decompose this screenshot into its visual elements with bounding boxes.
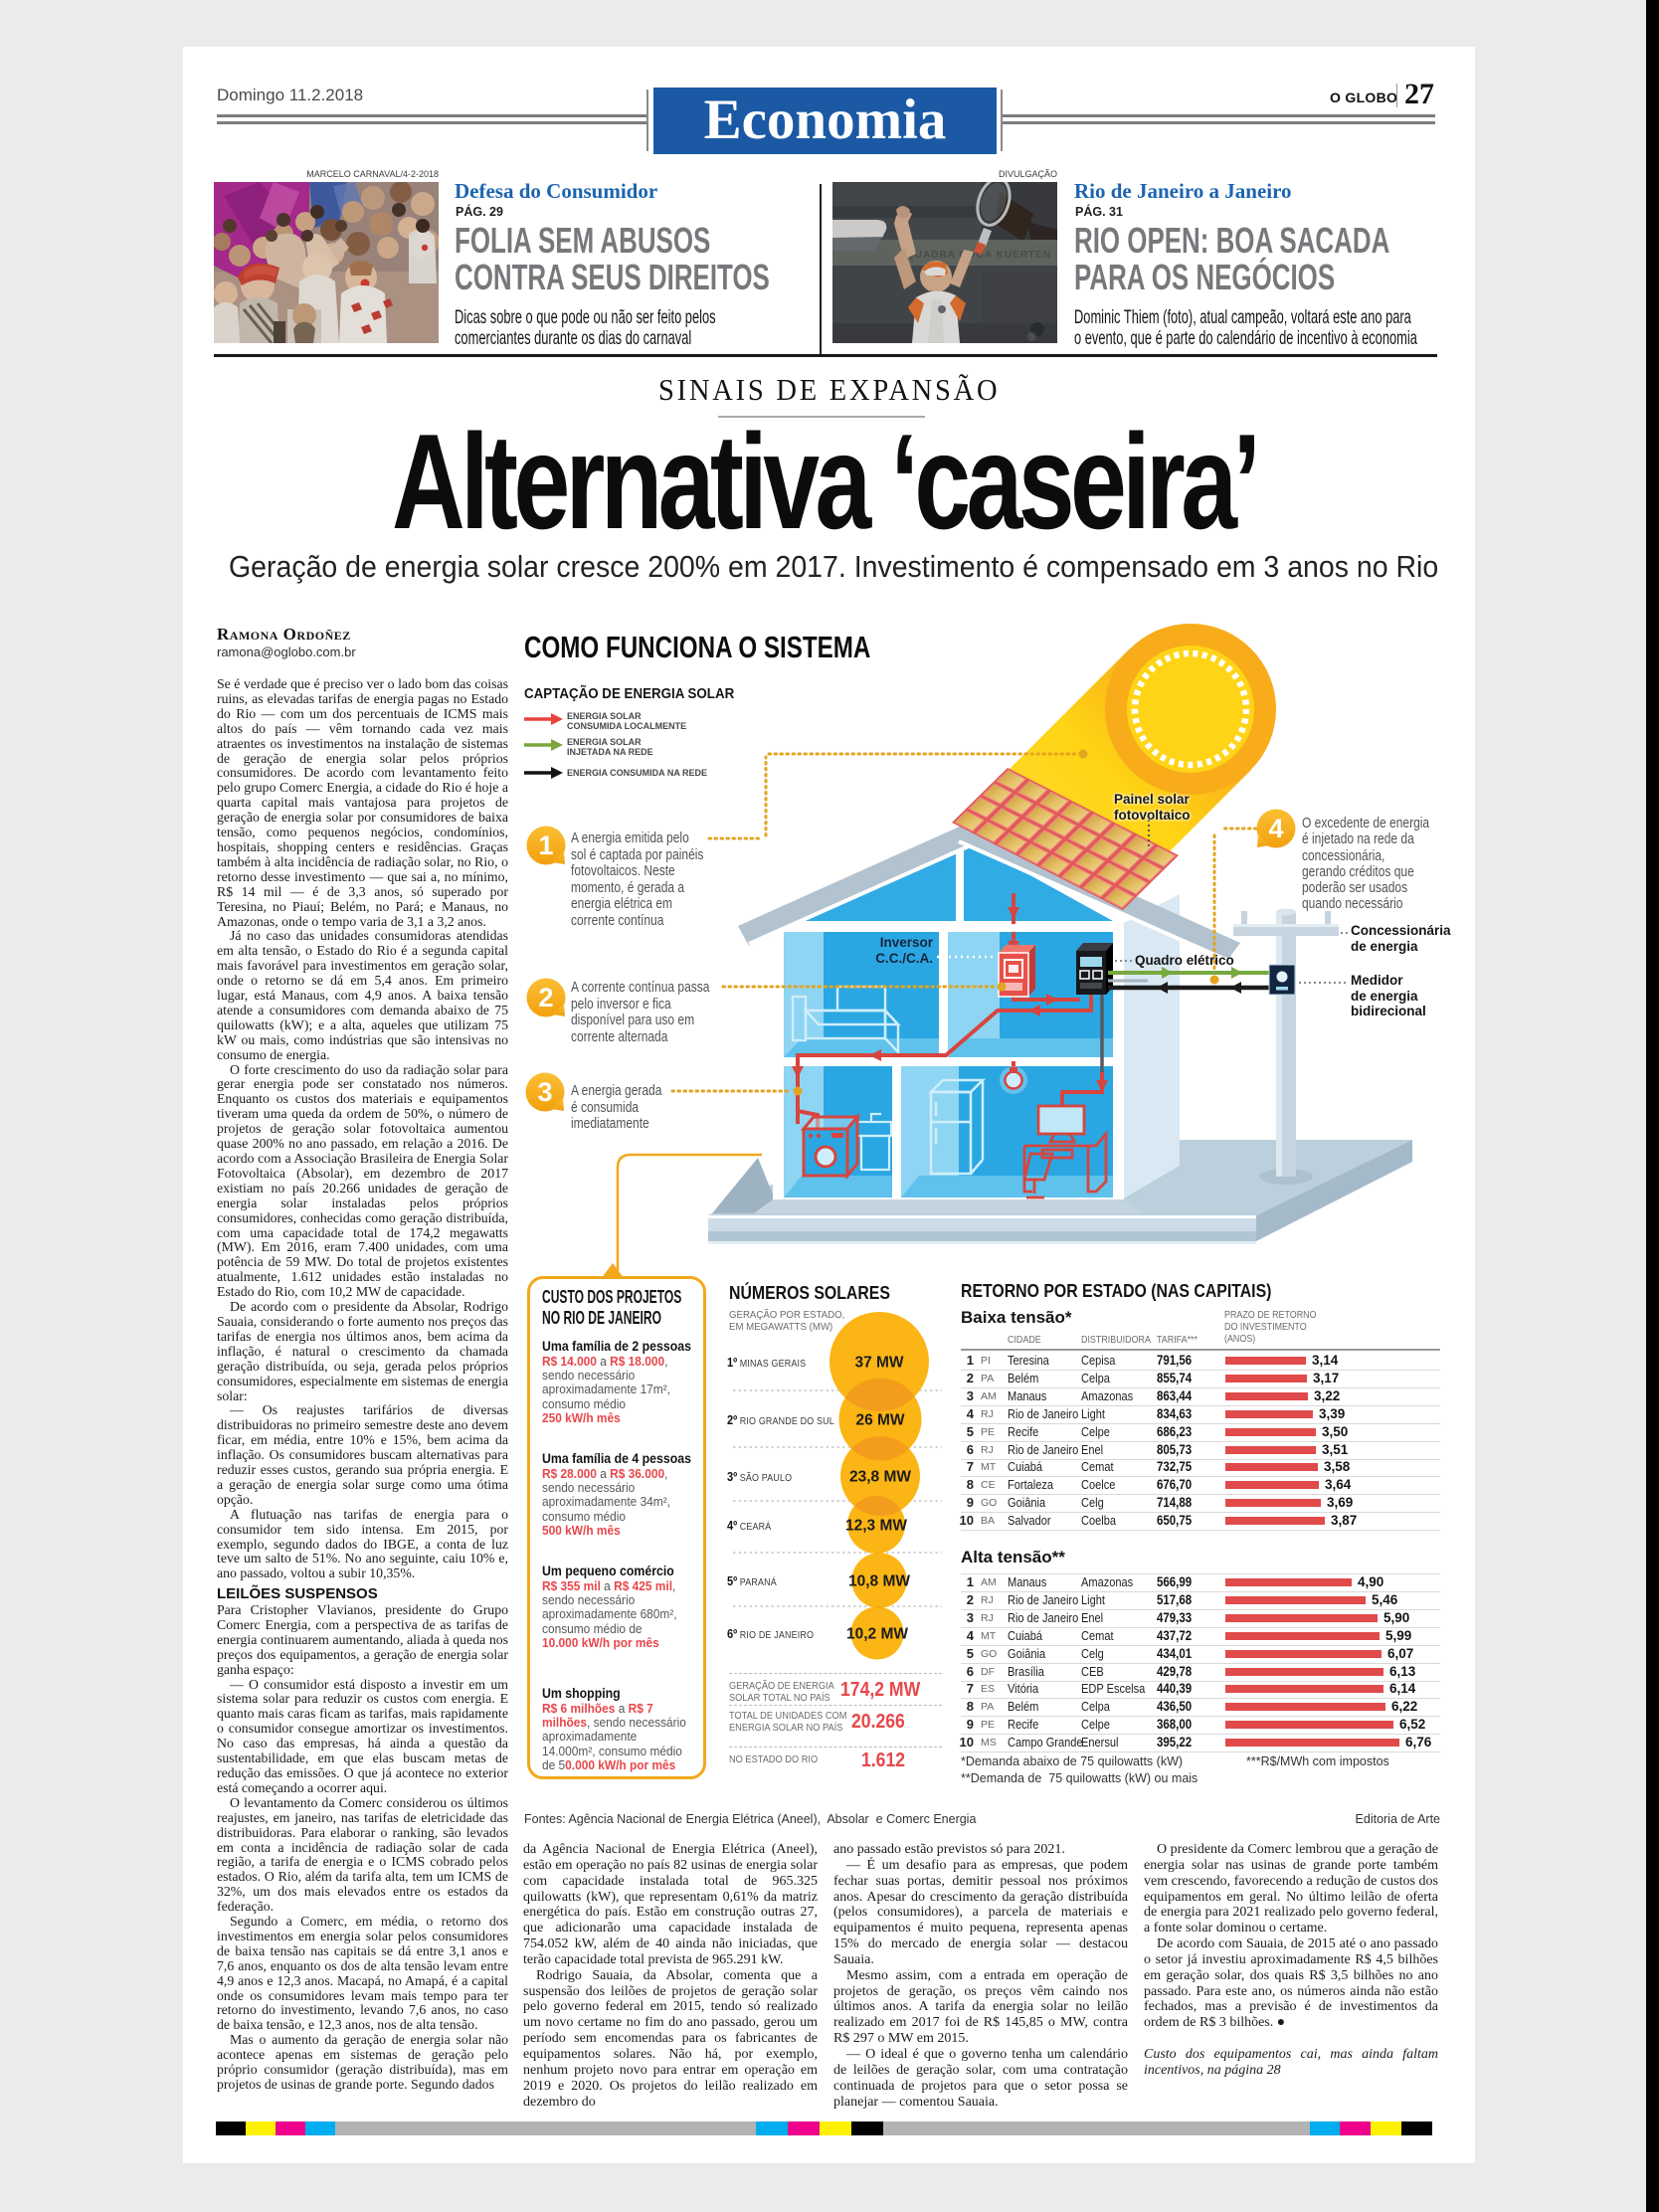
svg-text:23,8 MW: 23,8 MW — [849, 1469, 911, 1486]
svg-text:10,8 MW: 10,8 MW — [848, 1573, 910, 1590]
svg-text:4: 4 — [1268, 814, 1283, 843]
svg-text:12,3 MW: 12,3 MW — [845, 1518, 907, 1535]
svg-text:37 MW: 37 MW — [854, 1355, 903, 1372]
svg-text:26 MW: 26 MW — [855, 1412, 904, 1429]
svg-text:2: 2 — [538, 983, 553, 1013]
svg-text:3: 3 — [537, 1077, 552, 1107]
svg-text:10,2 MW: 10,2 MW — [846, 1626, 908, 1643]
svg-text:1: 1 — [538, 830, 553, 860]
